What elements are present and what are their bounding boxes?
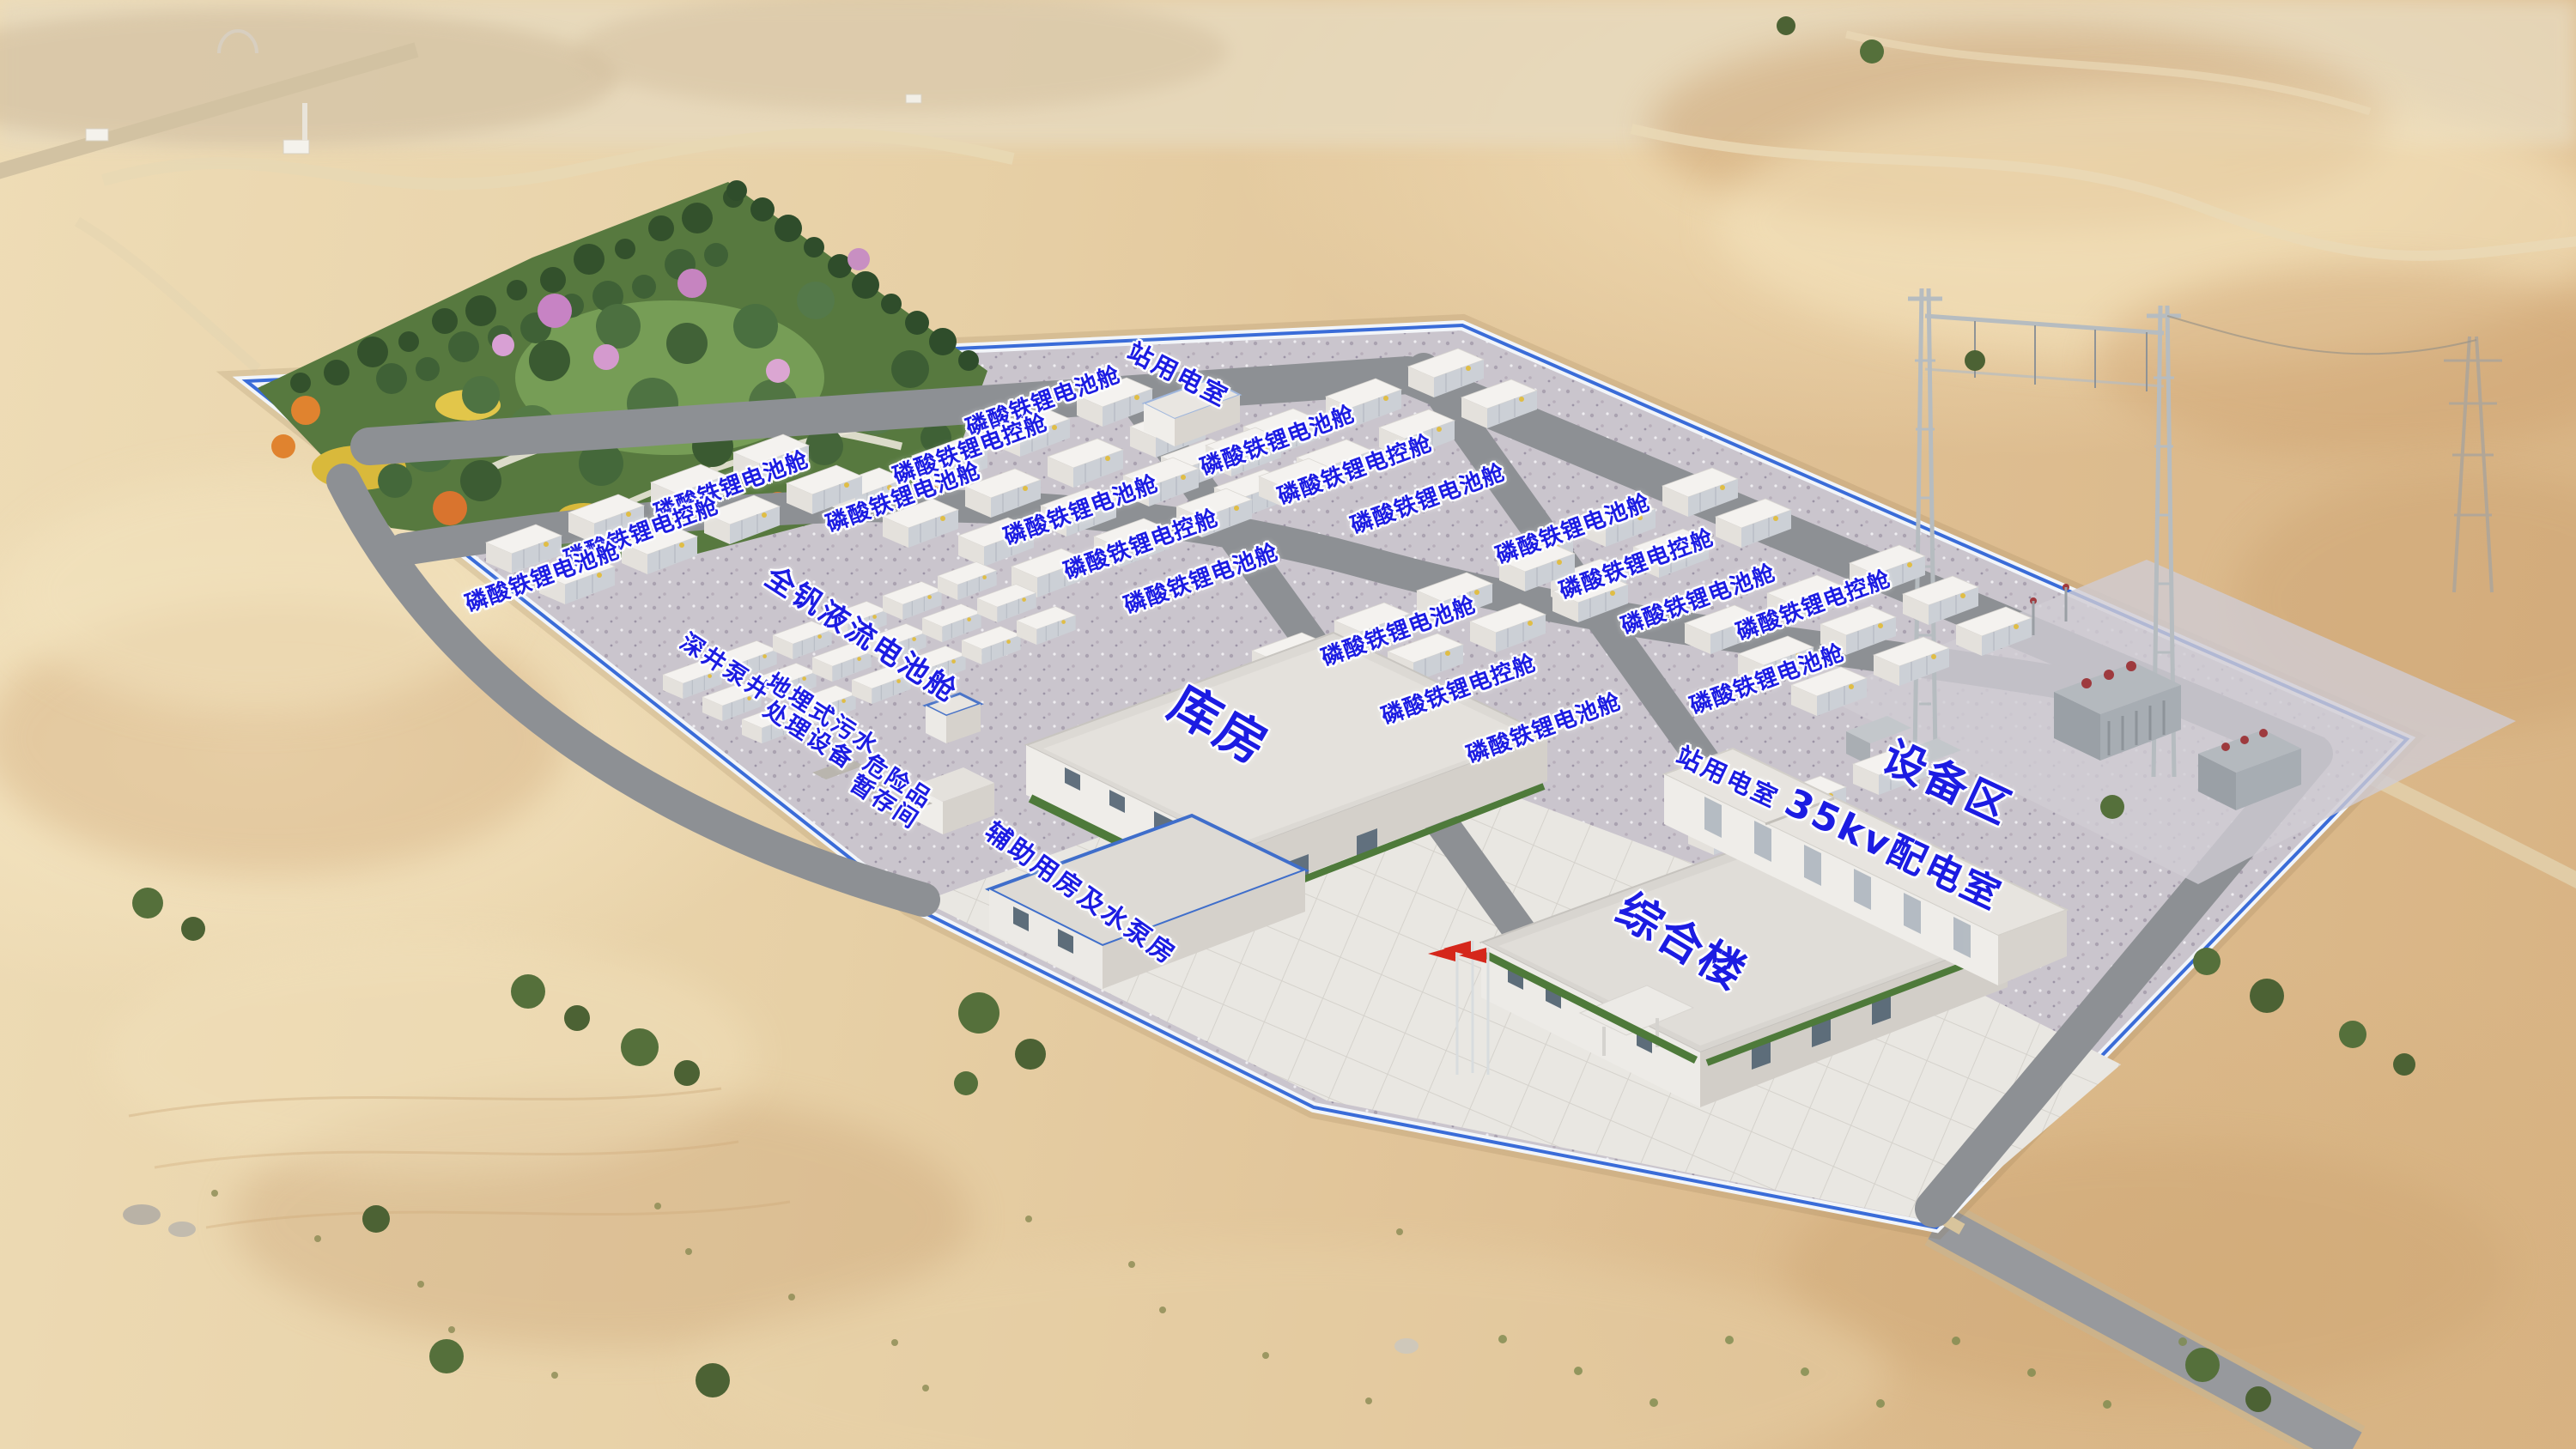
tree	[462, 376, 500, 414]
shrub	[1159, 1307, 1166, 1313]
tree	[2339, 1021, 2366, 1048]
tree	[429, 1339, 464, 1373]
tree	[632, 275, 656, 299]
tree	[433, 491, 467, 525]
tree	[804, 237, 824, 258]
tree	[432, 308, 458, 334]
tree	[416, 357, 440, 381]
shrub	[654, 1203, 661, 1210]
tree	[2393, 1053, 2415, 1076]
tree	[529, 340, 570, 381]
tree	[2100, 795, 2124, 819]
tree	[1965, 350, 1985, 371]
shrub	[417, 1281, 424, 1288]
shrub	[1725, 1336, 1734, 1344]
tree	[538, 294, 572, 328]
tree	[593, 344, 619, 370]
tree	[929, 328, 957, 355]
shrub	[2027, 1368, 2036, 1377]
tree	[704, 243, 728, 267]
tree	[465, 295, 496, 326]
scene-svg	[0, 0, 2576, 1449]
aerial-render-stage: 磷酸铁锂电池舱磷酸铁锂电控舱磷酸铁锂电池舱磷酸铁锂电池舱磷酸铁锂电控舱磷酸铁锂电…	[0, 0, 2576, 1449]
tree	[448, 331, 479, 362]
shrub	[2178, 1337, 2187, 1346]
shrub	[1498, 1335, 1507, 1343]
tree	[378, 464, 412, 498]
tree	[181, 917, 205, 941]
tree	[733, 304, 778, 349]
tree	[271, 434, 295, 458]
tree	[357, 336, 388, 367]
tree	[852, 271, 879, 299]
tree	[891, 350, 929, 388]
tree	[324, 360, 349, 385]
shrub	[551, 1372, 558, 1379]
tree	[766, 359, 790, 383]
tree	[615, 239, 635, 259]
shrub	[1262, 1352, 1269, 1359]
tree	[621, 1028, 659, 1066]
tree	[954, 1071, 978, 1095]
tree	[132, 888, 163, 919]
tree	[750, 197, 775, 221]
shrub	[922, 1385, 929, 1391]
shrub	[1025, 1216, 1032, 1222]
shrub	[1365, 1397, 1372, 1404]
shrub	[2103, 1400, 2111, 1409]
shrub	[1952, 1337, 1960, 1345]
tree	[958, 992, 999, 1034]
tree	[648, 215, 674, 241]
tree	[362, 1205, 390, 1233]
shrub	[1876, 1399, 1885, 1408]
tree	[2245, 1386, 2271, 1412]
tree	[398, 331, 419, 352]
shrub	[1396, 1228, 1403, 1235]
tree	[2250, 979, 2284, 1013]
shrub	[211, 1190, 218, 1197]
tree	[2193, 948, 2221, 975]
tree	[905, 311, 929, 335]
shrub	[1649, 1398, 1658, 1407]
tree	[1777, 16, 1795, 35]
tree	[775, 215, 802, 242]
shrub	[1128, 1261, 1135, 1268]
tree	[291, 396, 320, 425]
shrub	[448, 1326, 455, 1333]
tree	[682, 203, 713, 233]
shrub	[1801, 1367, 1809, 1376]
tree	[677, 269, 707, 298]
tree	[540, 267, 566, 293]
tree	[674, 1060, 700, 1086]
tree	[881, 294, 902, 314]
shrub	[1574, 1367, 1583, 1375]
shrub	[685, 1248, 692, 1255]
tree	[492, 334, 514, 356]
tree	[848, 248, 870, 270]
tree	[666, 323, 708, 364]
tree	[290, 373, 311, 393]
tree	[726, 180, 747, 201]
shrub	[891, 1339, 898, 1346]
tree	[511, 974, 545, 1009]
shrub	[314, 1235, 321, 1242]
shrub	[788, 1294, 795, 1300]
tree	[460, 460, 501, 501]
tree	[376, 363, 407, 394]
tree	[1860, 39, 1884, 64]
tree	[797, 282, 835, 319]
tree	[696, 1363, 730, 1397]
tree	[1015, 1039, 1046, 1070]
tree	[574, 244, 605, 275]
tree	[564, 1005, 590, 1031]
tree	[596, 304, 641, 349]
tree	[2185, 1348, 2220, 1382]
tree	[958, 350, 979, 371]
tree	[507, 280, 527, 300]
